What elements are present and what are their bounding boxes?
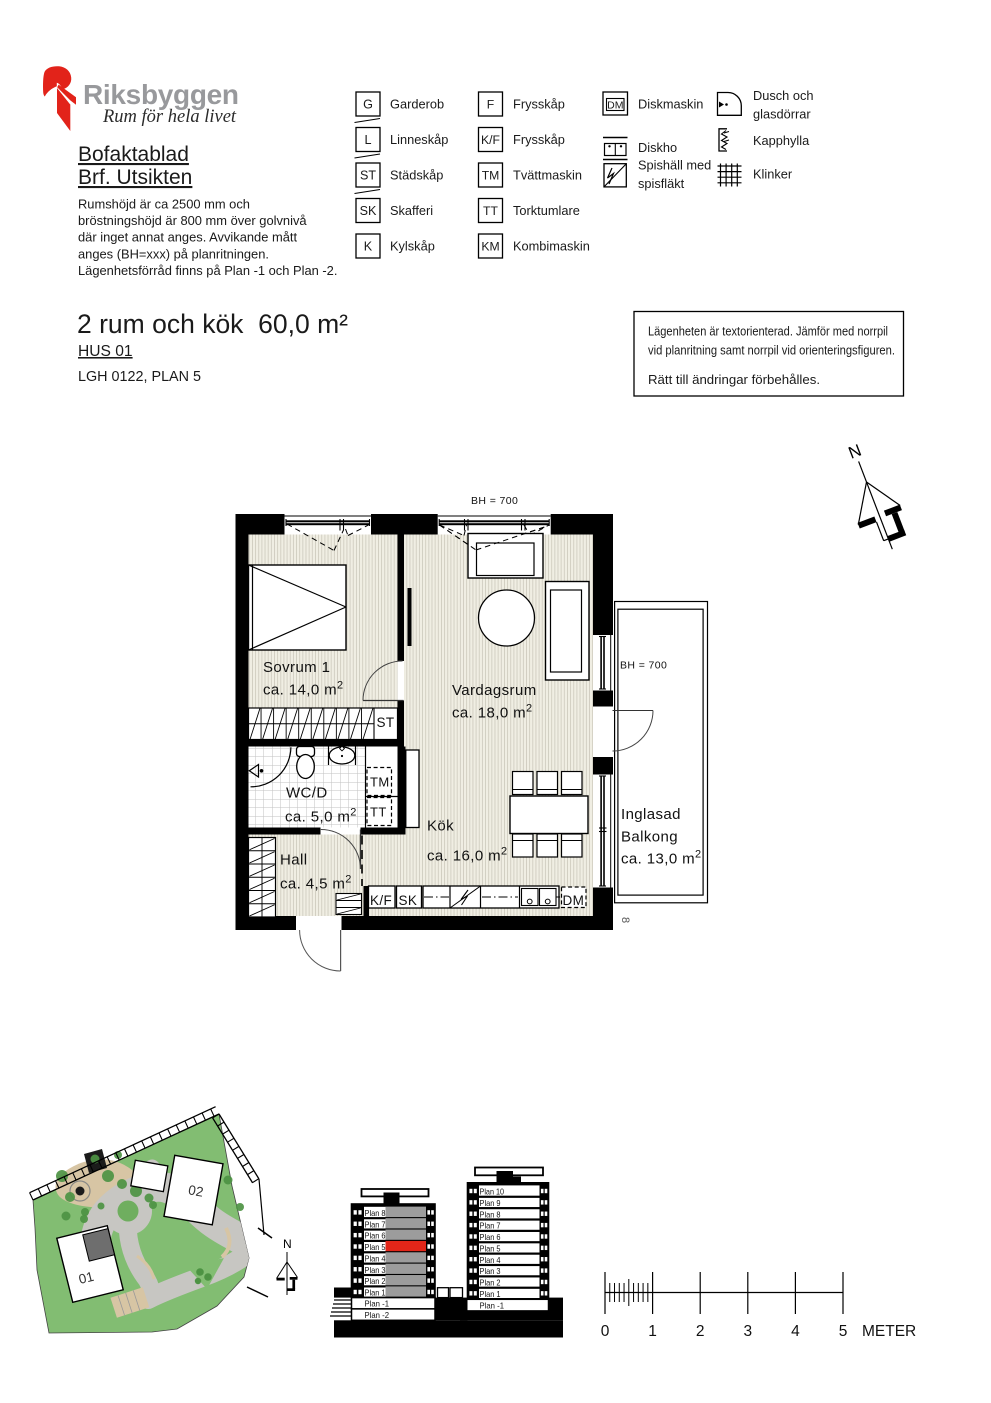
svg-text:L: L xyxy=(364,133,371,147)
svg-text:Plan 2: Plan 2 xyxy=(480,1278,501,1288)
svg-text:Sovrum 1: Sovrum 1 xyxy=(263,659,330,676)
svg-text:där inget annat anges. Avvikan: där inget annat anges. Avvikande mått xyxy=(78,230,297,245)
svg-text:Vardagsrum: Vardagsrum xyxy=(452,682,537,699)
svg-text:Riksbyggen: Riksbyggen xyxy=(83,79,239,110)
svg-text:Plan 6: Plan 6 xyxy=(480,1232,501,1242)
svg-text:ca. 18,0 m2: ca. 18,0 m2 xyxy=(452,703,533,722)
svg-text:Rätt till ändringar förbehålle: Rätt till ändringar förbehålles. xyxy=(648,373,820,387)
svg-text:Hall: Hall xyxy=(280,852,307,869)
svg-text:Diskho: Diskho xyxy=(638,140,677,155)
svg-text:DM: DM xyxy=(563,893,585,908)
svg-text:ca. 4,5 m2: ca. 4,5 m2 xyxy=(280,874,352,893)
svg-text:2 rum och kök 60,0 m²: 2 rum och kök 60,0 m² xyxy=(77,309,348,339)
svg-text:Inglasad: Inglasad xyxy=(621,806,681,823)
svg-text:G: G xyxy=(363,98,373,112)
svg-text:1: 1 xyxy=(648,1323,657,1340)
svg-text:Torktumlare: Torktumlare xyxy=(513,203,580,218)
svg-text:Plan 7: Plan 7 xyxy=(365,1219,386,1229)
svg-text:vid planritning samt norrpil v: vid planritning samt norrpil vid oriente… xyxy=(648,344,895,358)
svg-text:METER: METER xyxy=(862,1323,916,1340)
svg-text:Frysskåp: Frysskåp xyxy=(513,97,565,112)
svg-text:Balkong: Balkong xyxy=(621,829,678,846)
svg-text:Kök: Kök xyxy=(427,818,454,835)
svg-text:DM: DM xyxy=(607,99,623,111)
svg-text:Plan 1: Plan 1 xyxy=(480,1289,501,1299)
svg-text:Plan 8: Plan 8 xyxy=(480,1209,501,1219)
svg-text:5: 5 xyxy=(839,1323,848,1340)
svg-text:Plan -1: Plan -1 xyxy=(480,1301,505,1311)
svg-text:Rum för hela livet: Rum för hela livet xyxy=(102,107,237,127)
svg-text:BH = 700: BH = 700 xyxy=(471,495,518,507)
svg-text:Tvättmaskin: Tvättmaskin xyxy=(513,168,582,183)
svg-text:TM: TM xyxy=(370,775,390,790)
svg-text:Dusch och: Dusch och xyxy=(753,88,813,103)
svg-text:F: F xyxy=(487,98,494,112)
svg-text:Brf. Utsikten: Brf. Utsikten xyxy=(78,166,192,189)
svg-text:3: 3 xyxy=(743,1323,752,1340)
svg-text:Frysskåp: Frysskåp xyxy=(513,132,565,147)
svg-text:KM: KM xyxy=(481,240,499,254)
svg-text:SK: SK xyxy=(360,204,377,218)
svg-text:Plan 1: Plan 1 xyxy=(365,1288,386,1298)
svg-text:Städskåp: Städskåp xyxy=(390,168,443,183)
svg-text:Skafferi: Skafferi xyxy=(390,203,433,218)
svg-text:K/F: K/F xyxy=(481,133,500,147)
svg-text:Plan 5: Plan 5 xyxy=(365,1242,386,1252)
svg-text:Kapphylla: Kapphylla xyxy=(753,133,810,148)
svg-text:Spishäll med: Spishäll med xyxy=(638,158,711,173)
svg-text:SK: SK xyxy=(399,893,418,908)
svg-text:ST: ST xyxy=(360,169,376,183)
svg-text:ca. 5,0 m2: ca. 5,0 m2 xyxy=(285,807,357,826)
svg-text:Kylskåp: Kylskåp xyxy=(390,239,435,254)
svg-text:Plan 4: Plan 4 xyxy=(480,1255,501,1265)
svg-text:Plan 2: Plan 2 xyxy=(365,1276,386,1286)
svg-text:TT: TT xyxy=(483,204,498,218)
svg-text:ca. 16,0 m2: ca. 16,0 m2 xyxy=(427,846,508,865)
svg-text:Linneskåp: Linneskåp xyxy=(390,132,448,147)
svg-text:Plan 3: Plan 3 xyxy=(365,1265,386,1275)
svg-text:2: 2 xyxy=(696,1323,705,1340)
svg-text:BH = 700: BH = 700 xyxy=(620,660,667,672)
svg-text:anges (BH=xxx) på planritninge: anges (BH=xxx) på planritningen. xyxy=(78,246,269,261)
svg-text:TM: TM xyxy=(482,169,500,183)
svg-text:8: 8 xyxy=(619,917,631,924)
svg-text:TT: TT xyxy=(370,805,387,820)
svg-text:K: K xyxy=(364,240,373,254)
svg-text:Plan 10: Plan 10 xyxy=(480,1187,505,1197)
svg-text:K/F: K/F xyxy=(370,893,392,908)
svg-text:ca. 13,0 m2: ca. 13,0 m2 xyxy=(621,849,702,868)
svg-text:02: 02 xyxy=(187,1182,204,1199)
svg-text:WC/D: WC/D xyxy=(286,785,328,802)
svg-text:ST: ST xyxy=(377,715,395,730)
svg-text:spisfläkt: spisfläkt xyxy=(638,176,685,191)
svg-text:Kombimaskin: Kombimaskin xyxy=(513,239,590,254)
svg-text:Plan 4: Plan 4 xyxy=(365,1253,386,1263)
svg-text:Klinker: Klinker xyxy=(753,167,793,182)
svg-text:4: 4 xyxy=(791,1323,800,1340)
svg-text:Garderob: Garderob xyxy=(390,97,444,112)
svg-text:Lägenheten är textorienterad.: Lägenheten är textorienterad. Jämför med… xyxy=(648,325,888,339)
svg-text:0: 0 xyxy=(601,1323,610,1340)
svg-text:LGH 0122, PLAN 5: LGH 0122, PLAN 5 xyxy=(78,368,201,385)
svg-text:Plan -2: Plan -2 xyxy=(365,1310,390,1320)
svg-text:Rumshöjd är ca 2500 mm och: Rumshöjd är ca 2500 mm och xyxy=(78,197,250,212)
svg-text:Plan -1: Plan -1 xyxy=(365,1299,390,1309)
svg-text:HUS 01: HUS 01 xyxy=(78,343,133,360)
svg-text:Plan 5: Plan 5 xyxy=(480,1243,501,1253)
svg-text:Bofaktablad: Bofaktablad xyxy=(78,143,189,166)
svg-text:Plan 3: Plan 3 xyxy=(480,1266,501,1276)
svg-text:Plan 8: Plan 8 xyxy=(365,1208,386,1218)
svg-text:Plan 6: Plan 6 xyxy=(365,1231,386,1241)
svg-text:N: N xyxy=(283,1237,292,1251)
svg-text:Lägenhetsförråd finns på Plan: Lägenhetsförråd finns på Plan -1 och Pla… xyxy=(78,263,337,278)
svg-text:Plan 9: Plan 9 xyxy=(480,1198,501,1208)
svg-text:Diskmaskin: Diskmaskin xyxy=(638,97,703,112)
svg-text:glasdörrar: glasdörrar xyxy=(753,107,811,122)
svg-text:ca. 14,0 m2: ca. 14,0 m2 xyxy=(263,680,344,699)
svg-text:Plan 7: Plan 7 xyxy=(480,1221,501,1231)
svg-text:bröstningshöjd är 800 mm över: bröstningshöjd är 800 mm över golvnivå xyxy=(78,213,307,228)
